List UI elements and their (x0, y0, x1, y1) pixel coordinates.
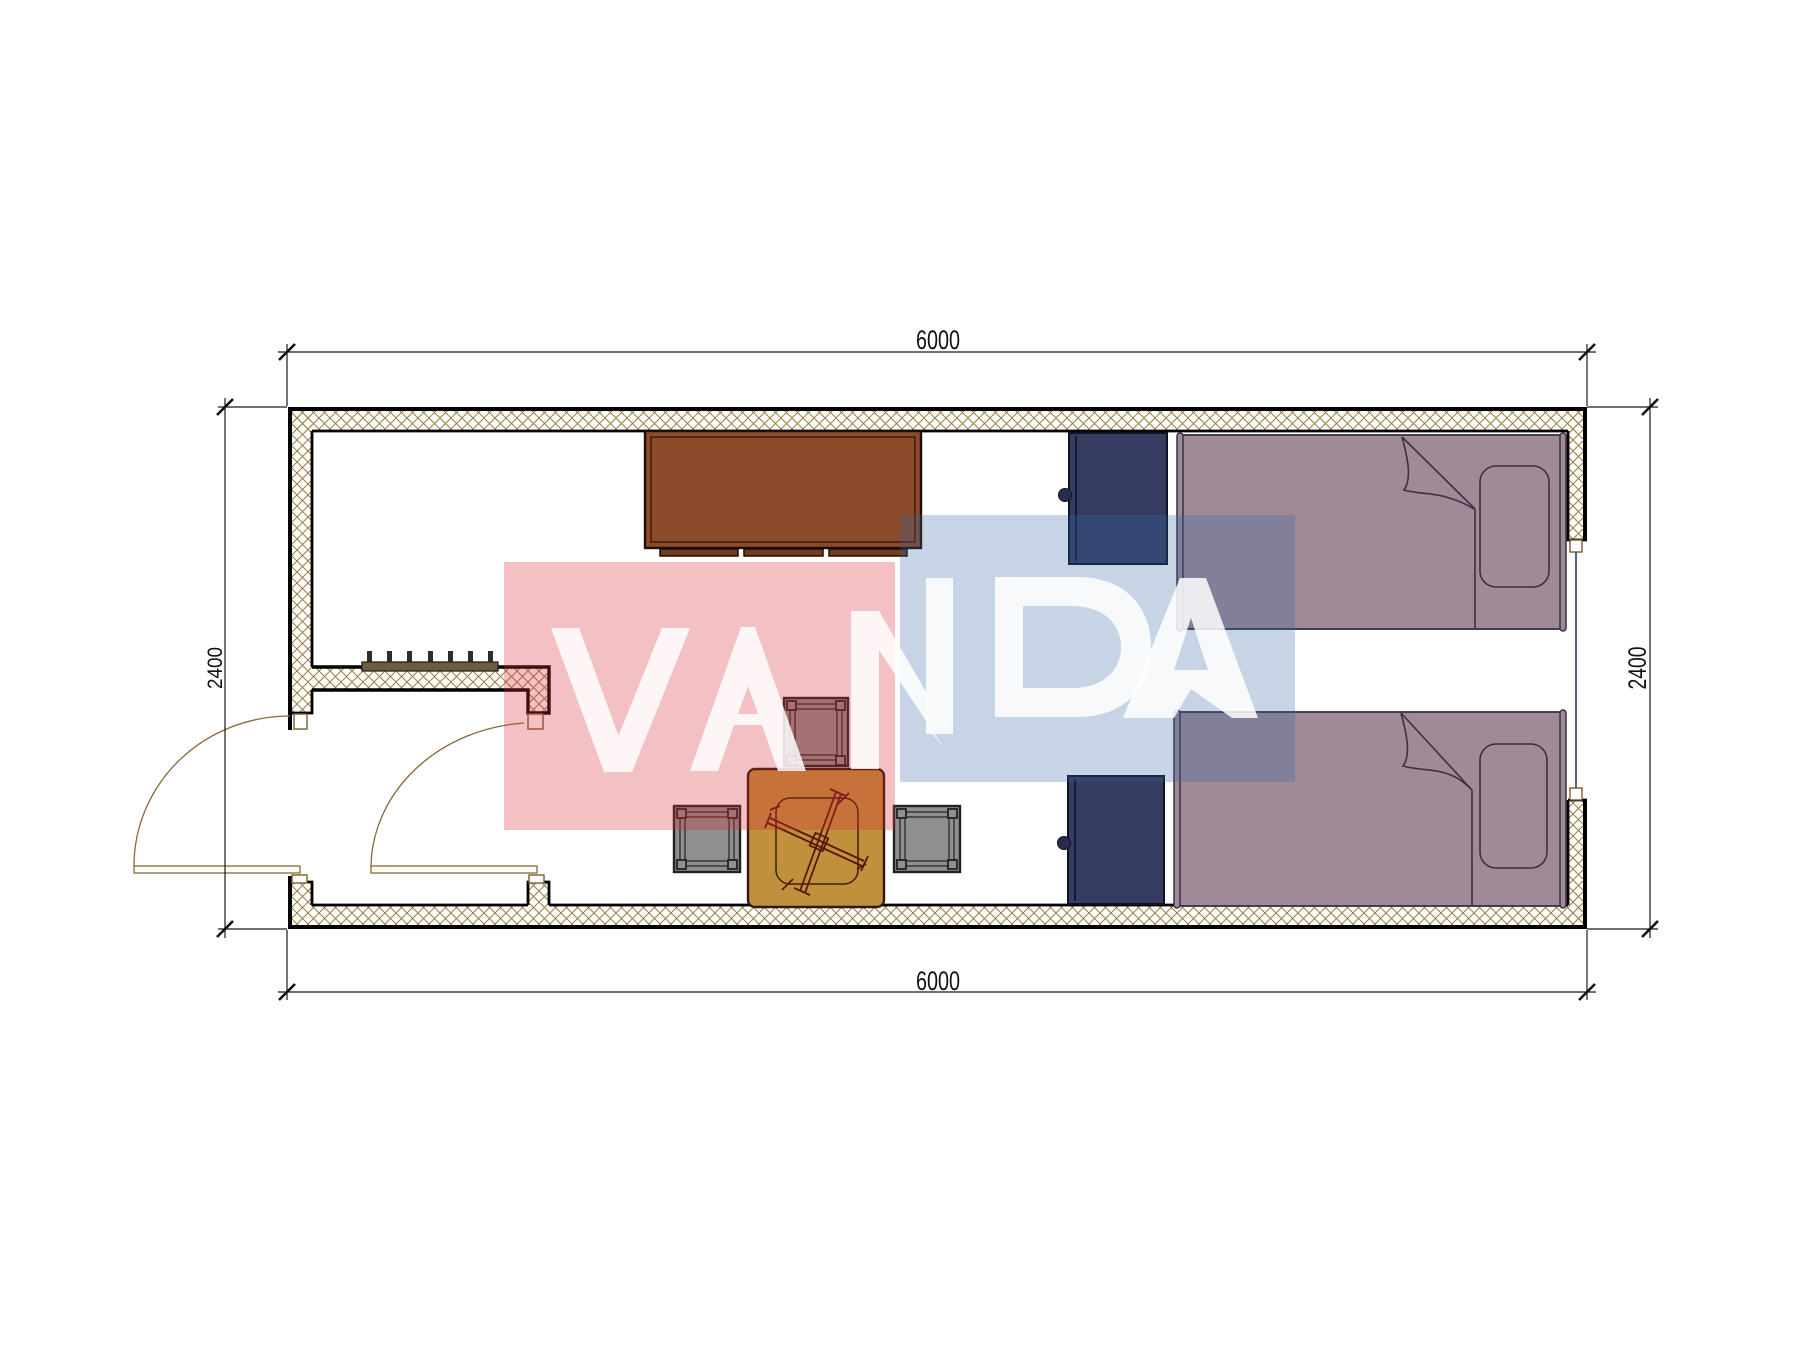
svg-text:6000: 6000 (916, 325, 960, 355)
svg-text:2400: 2400 (1624, 647, 1652, 690)
svg-text:2400: 2400 (204, 647, 227, 689)
svg-text:6000: 6000 (916, 966, 960, 996)
